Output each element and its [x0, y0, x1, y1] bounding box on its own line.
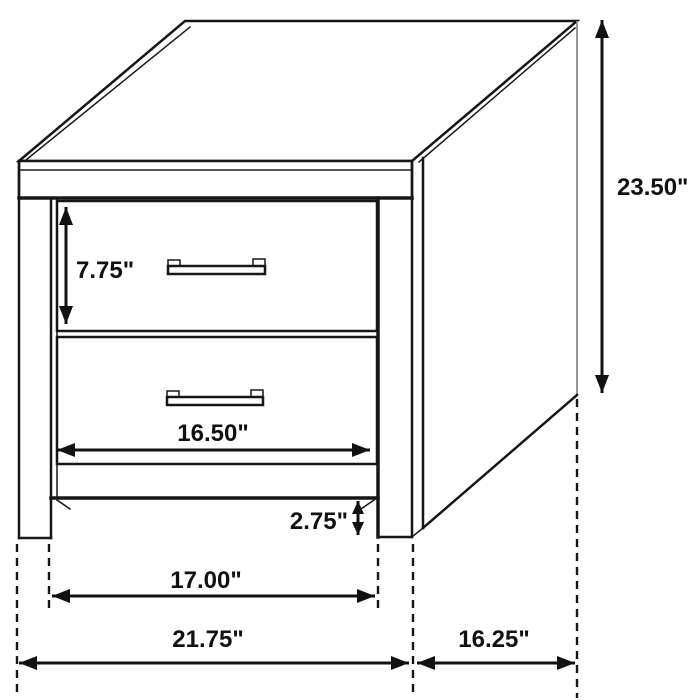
dimension-floor-clearance: 2.75"	[290, 501, 358, 535]
dimension-overall-depth: 16.25"	[417, 626, 575, 663]
side-bottom-edge	[423, 395, 577, 528]
nightstand-dimension-drawing: 7.75" 23.50" 16.50" 2.75" 17.00" 21.75" …	[0, 0, 700, 700]
dimension-overall-width: 21.75"	[19, 626, 409, 663]
dimension-overall-height: 23.50"	[602, 20, 688, 393]
dimension-label: 17.00"	[170, 567, 241, 594]
top-surface	[19, 21, 577, 161]
diagram-canvas: 7.75" 23.50" 16.50" 2.75" 17.00" 21.75" …	[0, 0, 700, 700]
dimension-label: 7.75"	[76, 257, 134, 284]
dimension-label: 21.75"	[172, 626, 243, 653]
dimension-label: 23.50"	[617, 174, 688, 201]
side-bottom-bevel	[412, 528, 423, 537]
right-leg-bracket	[361, 500, 374, 509]
dimension-label: 2.75"	[290, 508, 348, 535]
top-front-band	[19, 161, 412, 198]
left-leg-bracket	[57, 500, 70, 509]
handle-bar	[168, 266, 265, 274]
dimension-inner-leg-span: 17.00"	[52, 567, 375, 596]
handle-bar	[167, 397, 263, 405]
nightstand-top-slab	[19, 21, 577, 198]
dimension-label: 16.50"	[177, 420, 248, 447]
dimension-label: 16.25"	[458, 626, 529, 653]
